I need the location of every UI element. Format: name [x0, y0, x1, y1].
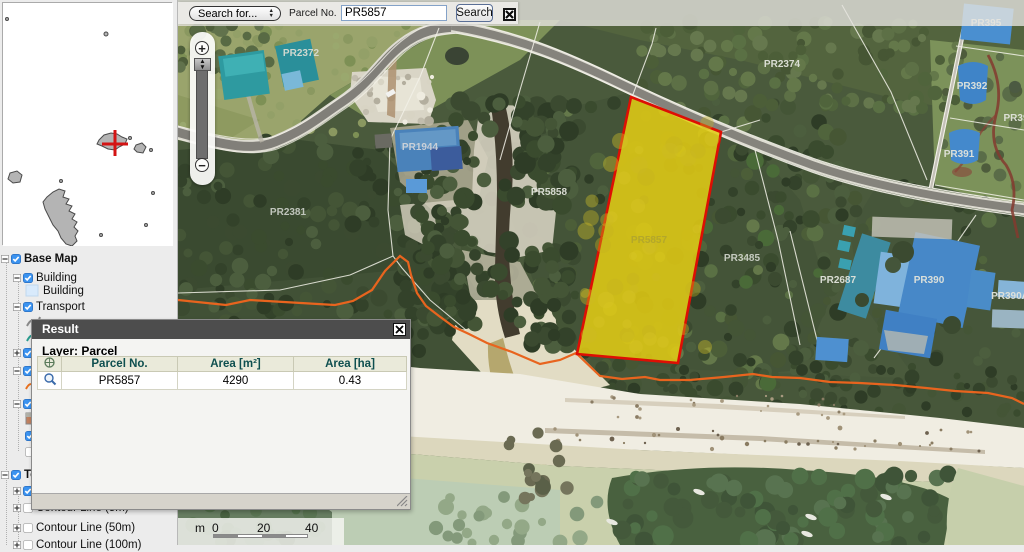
svg-text:PR390A: PR390A — [991, 291, 1024, 302]
svg-text:PR2381: PR2381 — [270, 207, 307, 218]
svg-text:PR39: PR39 — [1003, 113, 1024, 124]
svg-text:PR390: PR390 — [914, 275, 945, 286]
svg-text:PR2374: PR2374 — [764, 59, 801, 70]
svg-text:PR5857: PR5857 — [631, 235, 668, 246]
svg-text:PR392: PR392 — [957, 81, 988, 92]
svg-text:PR391: PR391 — [944, 149, 975, 160]
svg-text:PR1944: PR1944 — [402, 142, 439, 153]
svg-text:PR3485: PR3485 — [724, 253, 761, 264]
svg-text:PR2687: PR2687 — [820, 275, 857, 286]
svg-text:PR2372: PR2372 — [283, 48, 320, 59]
svg-text:PR5858: PR5858 — [531, 187, 568, 198]
